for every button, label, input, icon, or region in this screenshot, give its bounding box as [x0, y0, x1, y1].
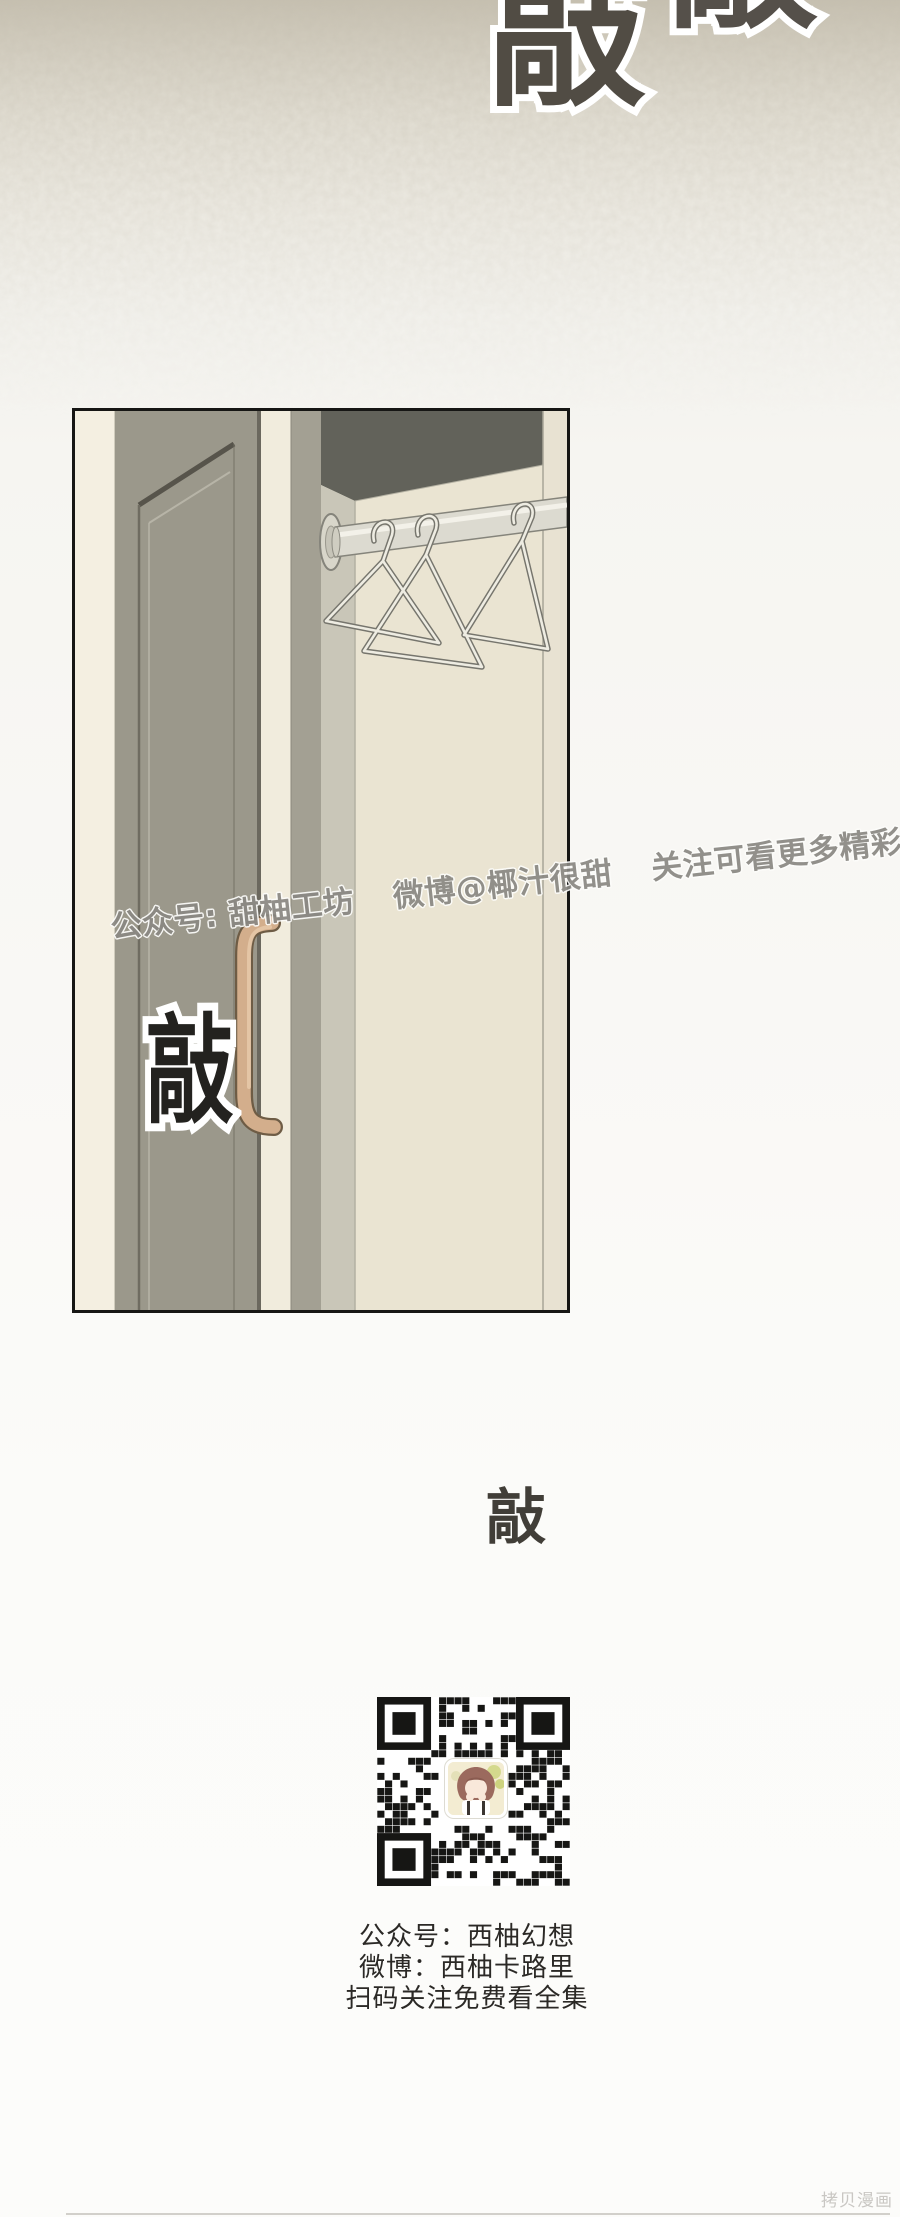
site-watermark: 拷贝漫画 [821, 2186, 893, 2211]
avatar-illustration [448, 1762, 504, 1815]
sfx-knock-top-partial: 敲 敲 [668, 0, 818, 38]
comic-page: 敲 敲 敲 敲 [0, 0, 900, 2217]
qr-caption-scan: 扫码关注免费看全集 [267, 1984, 667, 2015]
paper-texture [0, 0, 900, 420]
qr-center-avatar [445, 1759, 507, 1818]
qr-captions: 公众号：西柚幻想 微博：西柚卡路里 扫码关注免费看全集 [267, 1922, 667, 2015]
page-bottom-divider [66, 2213, 890, 2215]
sfx-knock-small: 敲 [486, 1488, 546, 1548]
qr-caption-wechat: 公众号：西柚幻想 [267, 1922, 667, 1953]
sfx-knock-on-door: 敲 敲 [146, 1012, 233, 1130]
sfx-knock-top: 敲 敲 [488, 0, 646, 116]
qr-code [377, 1697, 570, 1886]
wardrobe-door [115, 411, 321, 1310]
watermark-follow: 关注可看更多精彩全集 [649, 817, 900, 887]
qr-caption-weibo: 微博：西柚卡路里 [267, 1953, 667, 1984]
